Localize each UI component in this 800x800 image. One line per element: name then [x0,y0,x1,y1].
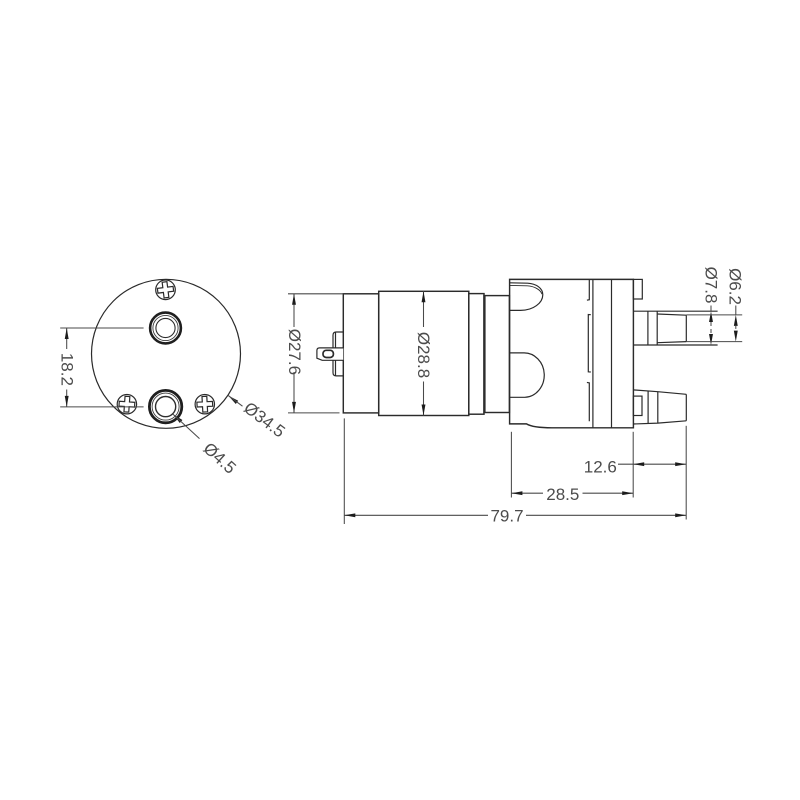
svg-text:12.6: 12.6 [584,457,617,476]
svg-text:Ø27.6: Ø27.6 [285,329,304,375]
svg-text:28.5: 28.5 [546,485,579,504]
svg-text:Ø7.8: Ø7.8 [701,267,720,304]
svg-text:Ø6.2: Ø6.2 [726,268,745,305]
svg-text:79.7: 79.7 [490,507,523,526]
svg-text:18.2: 18.2 [57,353,76,386]
svg-text:Ø28.8: Ø28.8 [414,332,433,378]
